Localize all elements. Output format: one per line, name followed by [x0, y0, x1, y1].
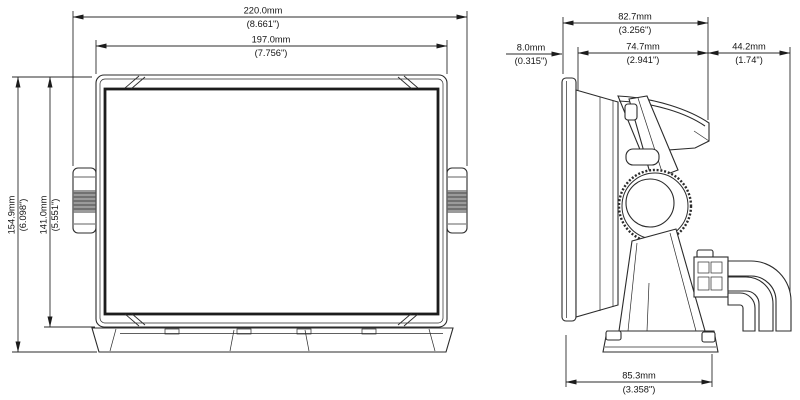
dim-depth-body: 74.7mm (2.941") [578, 42, 708, 91]
dim-label: 82.7mm [618, 12, 652, 22]
left-knob [73, 168, 96, 233]
ratchet-knob [619, 170, 691, 242]
dimension-drawing: 220.0mm (8.661") 197.0mm (7.756") 154.9m… [0, 0, 800, 400]
dim-label-inch: (7.756") [255, 48, 288, 58]
dim-label-inch: (1.74") [735, 55, 763, 65]
dim-label: 85.3mm [622, 371, 656, 381]
front-view [73, 75, 467, 352]
bottom-bracket [92, 328, 453, 352]
dim-label-inch: (0.315") [515, 56, 548, 66]
side-view [562, 78, 791, 352]
dim-label: 220.0mm [244, 6, 283, 16]
dim-label-inch: (2.941") [627, 55, 660, 65]
dim-cable-clearance: 44.2mm (1.74") [708, 42, 790, 293]
dim-label-inch: (6.098") [18, 199, 28, 232]
dim-label: 8.0mm [517, 43, 546, 53]
base [603, 331, 718, 352]
dim-label-inch: (3.358") [623, 385, 656, 395]
dim-label-inch: (3.256") [619, 25, 652, 35]
dim-label-inch: (5.551") [50, 199, 60, 232]
dim-label: 197.0mm [252, 35, 291, 45]
dim-label: 154.9mm [7, 195, 17, 234]
side-panel [562, 78, 618, 321]
screen [105, 89, 438, 314]
cable-inner [728, 293, 755, 331]
pedestal [619, 229, 705, 331]
dim-label: 74.7mm [626, 42, 660, 52]
dim-width-housing: 197.0mm (7.756") [96, 35, 447, 75]
dim-label: 44.2mm [732, 42, 766, 52]
dim-label-inch: (8.661") [247, 19, 280, 29]
cables [728, 261, 791, 331]
dim-front-protrusion: 8.0mm (0.315") [506, 43, 562, 67]
right-knob [447, 168, 467, 233]
dim-label: 141.0mm [39, 195, 49, 234]
